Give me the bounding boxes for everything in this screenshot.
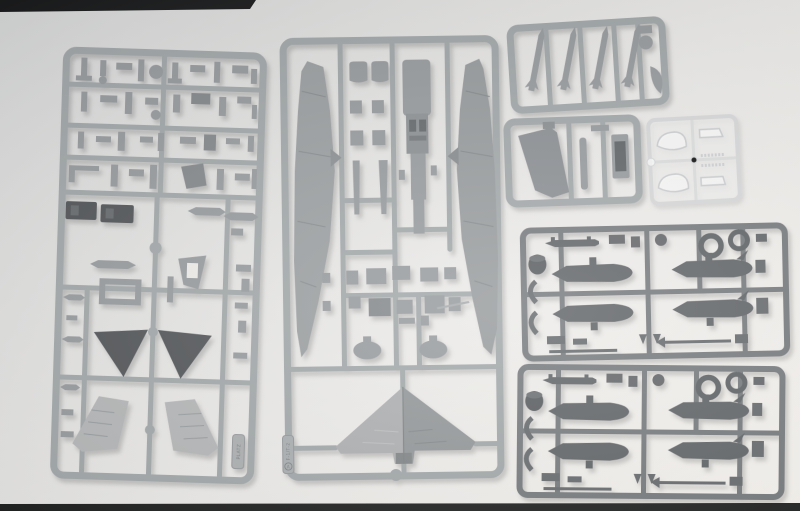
drop-tank-sprue-2 bbox=[519, 367, 782, 497]
bracket-part bbox=[167, 254, 251, 305]
detail-parts-sprue: PLATZ bbox=[53, 50, 263, 481]
photo-edge-bottom bbox=[0, 503, 800, 511]
main-airframe-sprue: A F-1/T-2 bbox=[277, 39, 501, 483]
frame-part bbox=[99, 278, 142, 305]
drop-tank-sprue-1 bbox=[523, 225, 788, 358]
delta-wing-part bbox=[335, 386, 476, 465]
maker-marking-text: PLATZ bbox=[236, 444, 242, 460]
kit-marking-text: F-1/T-2 bbox=[286, 442, 292, 460]
small-parts-band3 bbox=[78, 130, 255, 155]
gear-pod-parts bbox=[353, 335, 447, 359]
fin-sprue bbox=[507, 118, 640, 204]
ejection-seats bbox=[65, 201, 134, 223]
photo-model-kit-sprues: PLATZ bbox=[0, 0, 800, 511]
fuselage-spine-part bbox=[397, 59, 437, 234]
photo-edge-top bbox=[0, 0, 256, 12]
sprue-tag-f1t2: A F-1/T-2 bbox=[282, 435, 294, 473]
hatch-panel-part bbox=[591, 124, 630, 179]
sprue-letter-text: A bbox=[287, 464, 290, 470]
blade-part bbox=[579, 137, 588, 189]
sprue-scene: PLATZ bbox=[0, 0, 800, 511]
clear-parts-sprue bbox=[645, 116, 740, 205]
sprue-tag-platz: PLATZ bbox=[232, 434, 245, 468]
pylon-parts bbox=[353, 160, 389, 214]
small-gear-parts-band2 bbox=[81, 90, 258, 124]
intake-lip-parts bbox=[349, 61, 388, 83]
vertical-fin-part bbox=[518, 121, 570, 199]
fuselage-half-left bbox=[291, 61, 344, 358]
wing-upper-halves bbox=[72, 395, 220, 456]
missile-sprue bbox=[510, 19, 667, 111]
bracket-pairs bbox=[350, 100, 386, 145]
